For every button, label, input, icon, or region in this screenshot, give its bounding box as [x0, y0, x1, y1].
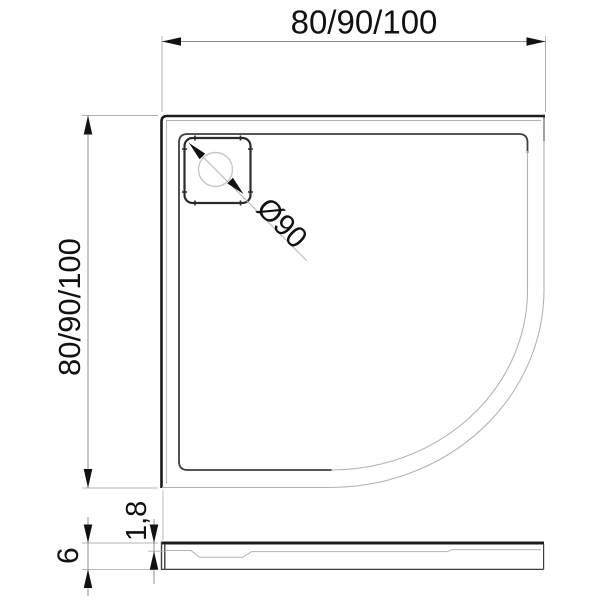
depth-label: 80/90/100 — [52, 238, 87, 376]
depth-arrow-bottom — [84, 469, 93, 488]
width-arrow-left — [162, 37, 181, 46]
height-extension-lines — [82, 543, 158, 569]
drain-diameter-label: Ø90 — [250, 192, 313, 255]
width-extension-lines — [162, 36, 546, 112]
width-arrow-right — [527, 37, 546, 46]
profile-inner-surface-contour — [166, 550, 541, 558]
shower-tray-drawing: Ø90 80/90/100 80/90/100 6 — [0, 0, 600, 600]
plan-inner-rim-arc — [331, 151, 528, 470]
technical-drawing-canvas: Ø90 80/90/100 80/90/100 6 — [0, 0, 600, 600]
total-height-label: 6 — [52, 547, 85, 564]
rim-thickness-label: 1,8 — [121, 501, 153, 541]
depth-arrow-top — [84, 116, 93, 135]
height-arrow-top — [84, 525, 93, 544]
plan-view: Ø90 — [162, 116, 546, 488]
height-arrow-bottom — [84, 569, 93, 588]
dimension-rim-thickness: 1,8 — [121, 501, 165, 584]
side-profile-view — [161, 490, 544, 570]
width-label: 80/90/100 — [291, 4, 438, 41]
rim-arrow-bottom — [150, 551, 159, 570]
dimension-depth: 80/90/100 — [52, 116, 158, 489]
profile-left-edge — [162, 542, 165, 570]
depth-extension-lines — [82, 116, 158, 489]
dimension-width: 80/90/100 — [162, 4, 546, 113]
